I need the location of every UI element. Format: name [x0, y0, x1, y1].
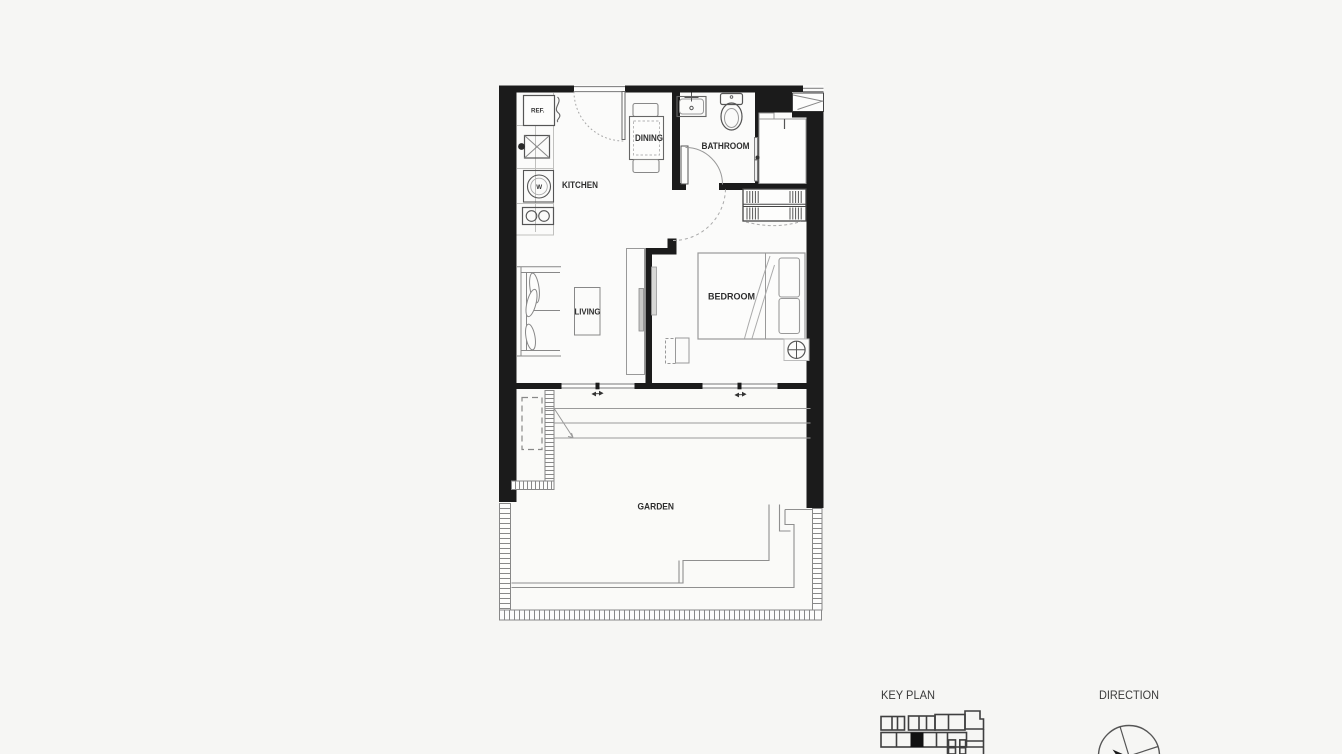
svg-text:GARDEN: GARDEN: [638, 501, 675, 512]
svg-text:W: W: [536, 184, 542, 191]
svg-text:BATHROOM: BATHROOM: [702, 141, 750, 151]
svg-text:KITCHEN: KITCHEN: [562, 180, 598, 190]
svg-text:BEDROOM: BEDROOM: [708, 291, 755, 302]
svg-text:DIRECTION: DIRECTION: [1099, 690, 1159, 702]
svg-text:DINING: DINING: [635, 133, 663, 143]
svg-text:LIVING: LIVING: [575, 306, 601, 316]
svg-text:REF.: REF.: [531, 109, 545, 115]
svg-text:KEY PLAN: KEY PLAN: [881, 690, 935, 702]
